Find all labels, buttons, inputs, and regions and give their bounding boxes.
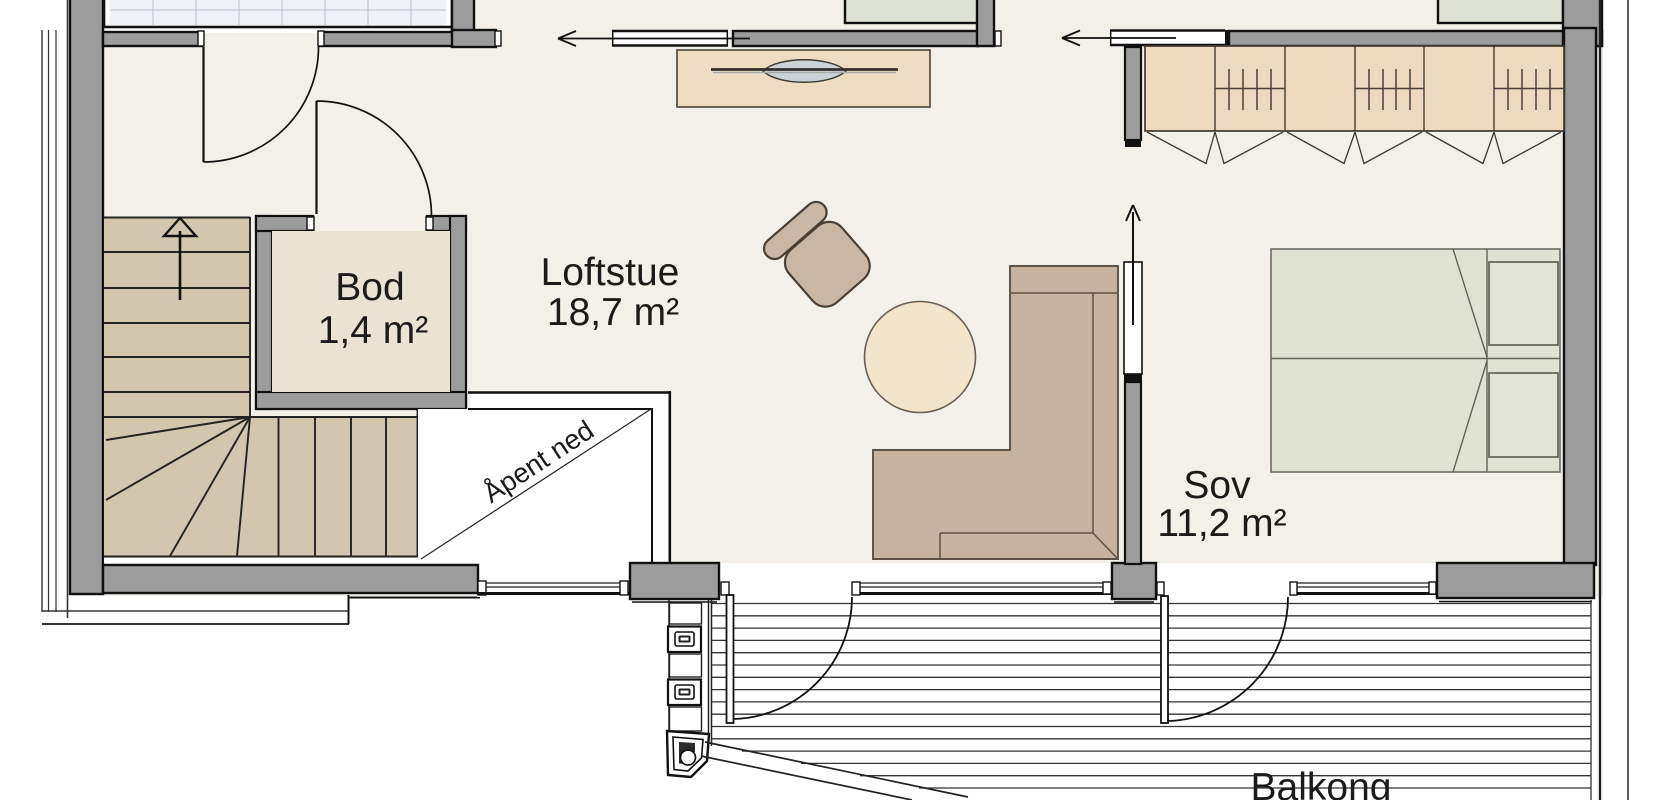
svg-text:Balkong: Balkong [1251,766,1392,800]
svg-text:Bod: Bod [335,266,404,309]
svg-text:Sov: Sov [1183,464,1251,507]
svg-text:18,7 m²: 18,7 m² [547,291,679,334]
svg-text:11,2 m²: 11,2 m² [1157,502,1286,545]
svg-text:1,4 m²: 1,4 m² [318,309,429,352]
svg-text:Loftstue: Loftstue [541,251,680,294]
